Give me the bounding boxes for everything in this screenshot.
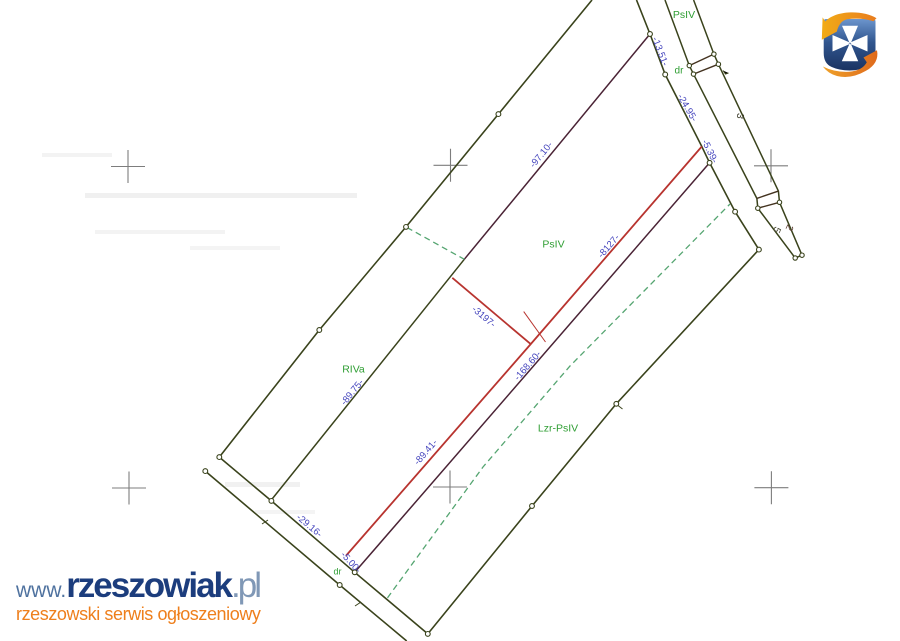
svg-text:-5.00-: -5.00- bbox=[338, 550, 363, 576]
svg-text:dr: dr bbox=[333, 566, 341, 576]
svg-text:-5.39-: -5.39- bbox=[699, 138, 720, 165]
svg-text:dr: dr bbox=[675, 66, 685, 77]
svg-text:-3197-: -3197- bbox=[469, 304, 497, 330]
svg-text:-8127-: -8127- bbox=[596, 233, 622, 261]
svg-text:-13.51-: -13.51- bbox=[649, 35, 670, 67]
svg-text:-168.60-: -168.60- bbox=[512, 349, 544, 383]
svg-text:RIVa: RIVa bbox=[342, 364, 365, 376]
svg-text:PsIV: PsIV bbox=[542, 239, 564, 251]
svg-text:-89.75-: -89.75- bbox=[339, 377, 366, 407]
svg-text:Lzr-PsIV: Lzr-PsIV bbox=[538, 423, 578, 435]
svg-text:2: 2 bbox=[783, 223, 796, 233]
svg-text:3: 3 bbox=[734, 112, 746, 120]
svg-text:-29.16-: -29.16- bbox=[294, 512, 324, 540]
svg-text:PsIV: PsIV bbox=[673, 9, 695, 21]
